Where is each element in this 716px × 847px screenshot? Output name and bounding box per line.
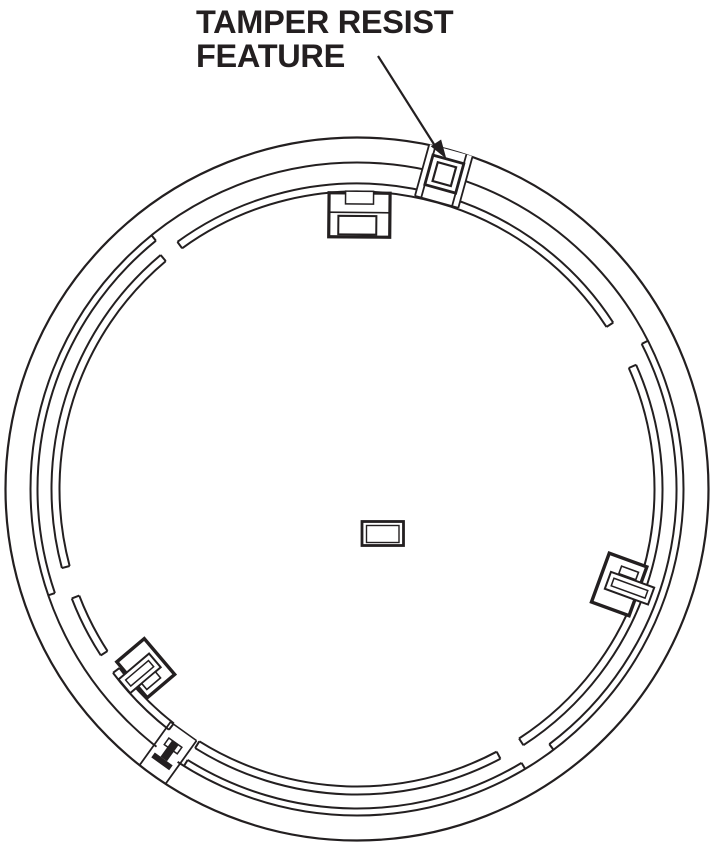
knockout-inner [367,526,400,543]
locking-track-inner-segment [72,596,108,656]
outer-rim-circle [6,138,709,841]
diagram-canvas: TAMPER RESIST FEATURE [0,0,716,847]
locking-track-segments [38,184,677,809]
side-clip-right [591,553,660,620]
clip-top-notch [345,191,373,204]
clip-top-divider [329,212,390,213]
inner-rim-circle [31,163,684,816]
locking-track-outer-segment [184,760,525,809]
tamper-key-slot [139,722,196,785]
rim-rings [6,138,709,841]
center-knockout [362,522,404,546]
detector-base-drawing [6,56,709,841]
locking-track-inner-segment [177,184,613,327]
annotation-label-line1: TAMPER RESIST [196,4,454,40]
tab-outer-box [425,155,464,193]
technical-drawing-page: TAMPER RESIST FEATURE [0,0,716,847]
locking-track-inner-segment [51,255,165,568]
annotation-label-line2: FEATURE [196,38,345,74]
locking-track-inner-segment [519,365,662,745]
key-slot-end-line [171,722,197,741]
mounting-clip-top [329,191,390,237]
leader-line [378,56,437,149]
